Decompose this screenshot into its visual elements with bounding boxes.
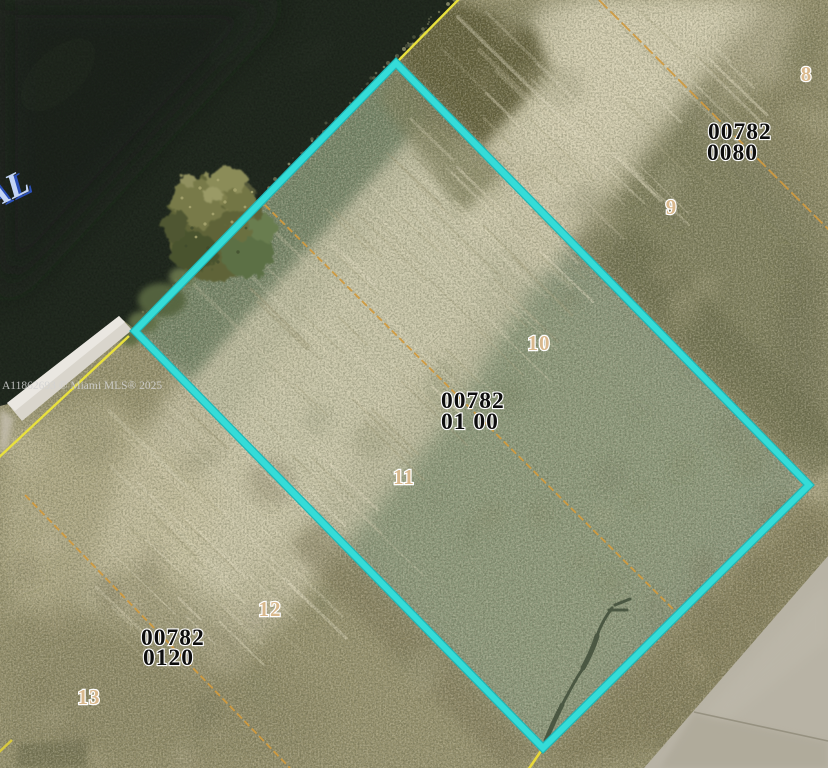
svg-text:13: 13 [78, 685, 101, 709]
svg-text:0080: 0080 [707, 140, 758, 166]
svg-text:8: 8 [801, 62, 812, 86]
svg-text:01 00: 01 00 [441, 409, 499, 435]
svg-text:A11862693 © Miami MLS® 2025: A11862693 © Miami MLS® 2025 [2, 380, 162, 392]
svg-text:10: 10 [528, 331, 551, 355]
svg-text:12: 12 [259, 597, 282, 621]
svg-text:0120: 0120 [143, 645, 194, 671]
svg-text:9: 9 [666, 195, 677, 219]
svg-text:11: 11 [393, 465, 415, 489]
